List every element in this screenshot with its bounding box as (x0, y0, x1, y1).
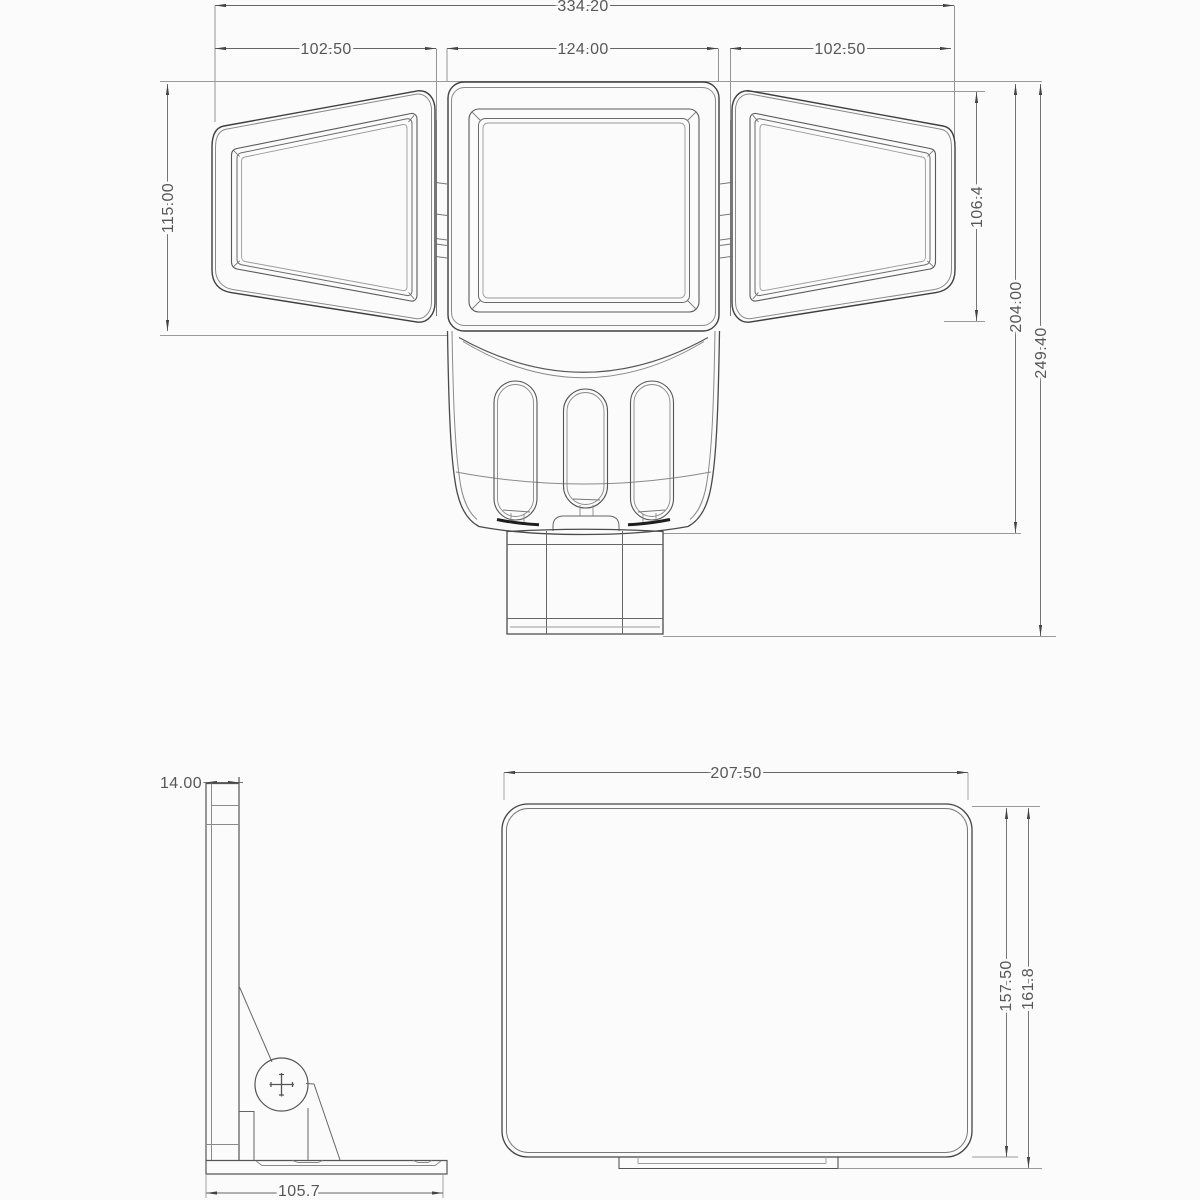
svg-text:157.50: 157.50 (998, 960, 1015, 1011)
svg-text:161.8: 161.8 (1020, 968, 1037, 1010)
svg-text:124.00: 124.00 (557, 41, 608, 58)
svg-text:102.50: 102.50 (300, 41, 351, 58)
svg-text:106.4: 106.4 (969, 186, 986, 228)
svg-text:204.00: 204.00 (1008, 281, 1025, 332)
svg-text:102.50: 102.50 (814, 41, 865, 58)
svg-text:207.50: 207.50 (710, 765, 761, 782)
svg-text:14.00: 14.00 (160, 775, 202, 792)
svg-text:249.40: 249.40 (1033, 327, 1050, 378)
svg-text:105.7: 105.7 (278, 1183, 320, 1200)
svg-text:115.00: 115.00 (160, 183, 177, 233)
svg-text:334.20: 334.20 (557, 0, 608, 15)
